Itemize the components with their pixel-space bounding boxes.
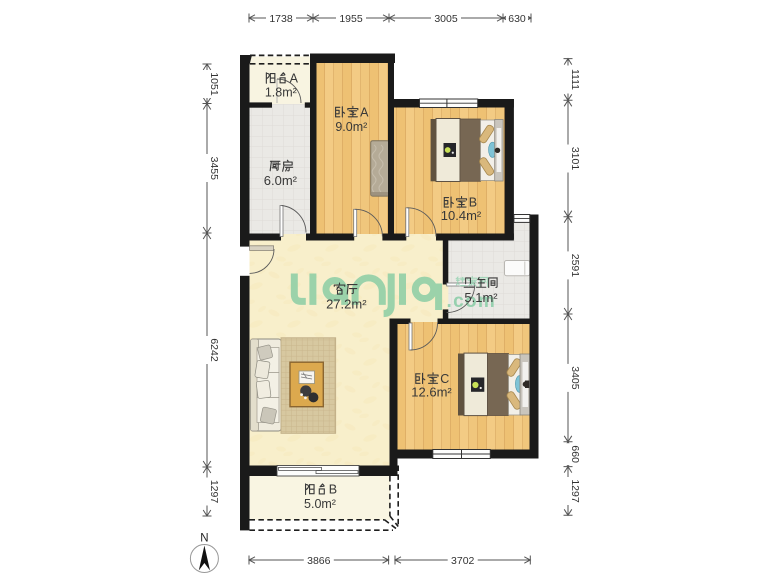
svg-text:3405: 3405 (569, 366, 581, 390)
svg-text:10.4m²: 10.4m² (441, 208, 482, 223)
svg-text:2591: 2591 (569, 254, 581, 278)
svg-text:630: 630 (508, 13, 526, 25)
svg-text:1955: 1955 (339, 13, 363, 25)
svg-text:1738: 1738 (269, 13, 293, 25)
svg-text:1111: 1111 (569, 69, 581, 90)
svg-text:6242: 6242 (208, 338, 220, 362)
svg-text:5.1m²: 5.1m² (464, 290, 498, 305)
svg-text:9.0m²: 9.0m² (335, 120, 367, 134)
svg-text:1297: 1297 (569, 479, 581, 503)
svg-text:12.6m²: 12.6m² (411, 385, 452, 400)
svg-text:6.0m²: 6.0m² (264, 173, 298, 188)
svg-text:1297: 1297 (208, 480, 220, 504)
svg-text:1051: 1051 (208, 72, 220, 96)
svg-text:5.0m²: 5.0m² (304, 497, 336, 511)
svg-text:27.2m²: 27.2m² (326, 297, 367, 312)
svg-text:A: A (290, 71, 299, 85)
svg-text:3455: 3455 (208, 157, 220, 181)
svg-text:3101: 3101 (569, 147, 581, 171)
svg-text:660: 660 (569, 445, 581, 463)
svg-text:A: A (360, 105, 369, 119)
svg-text:1.8m²: 1.8m² (265, 85, 297, 99)
svg-text:N: N (200, 533, 208, 545)
svg-text:B: B (329, 483, 337, 497)
svg-text:3702: 3702 (451, 555, 475, 567)
svg-text:3866: 3866 (307, 555, 331, 567)
svg-text:3005: 3005 (434, 13, 458, 25)
